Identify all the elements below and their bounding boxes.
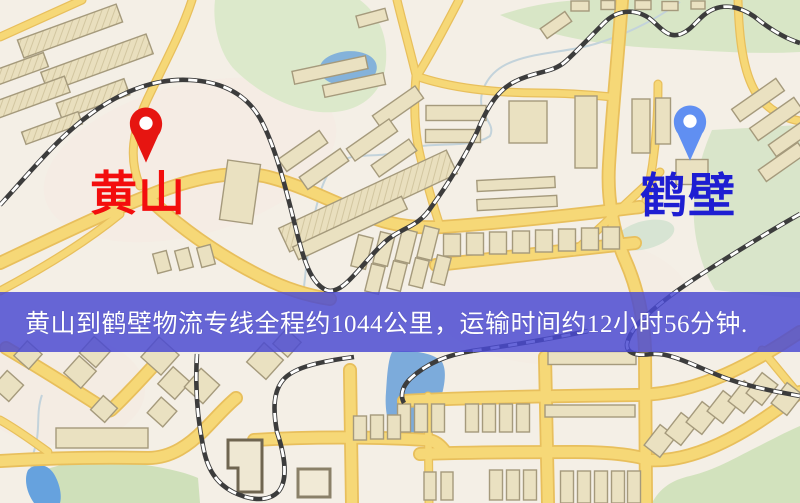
- origin-city-label: 黄山: [90, 172, 186, 219]
- origin-pin: [127, 104, 165, 168]
- destination-pin: [671, 103, 709, 165]
- blue-pin-icon: [671, 103, 709, 165]
- destination-city-label: 鹤壁: [640, 174, 736, 221]
- map-canvas: [0, 0, 800, 503]
- red-pin-icon: [127, 104, 165, 168]
- route-info-banner: 黄山到鹤壁物流专线全程约1044公里，运输时间约12小时56分钟.: [0, 292, 800, 352]
- route-info-text: 黄山到鹤壁物流专线全程约1044公里，运输时间约12小时56分钟.: [0, 304, 748, 340]
- map-screenshot: 黄山 鹤壁 黄山到鹤壁物流专线全程约1044公里，运输时间约12小时56分钟.: [0, 0, 800, 503]
